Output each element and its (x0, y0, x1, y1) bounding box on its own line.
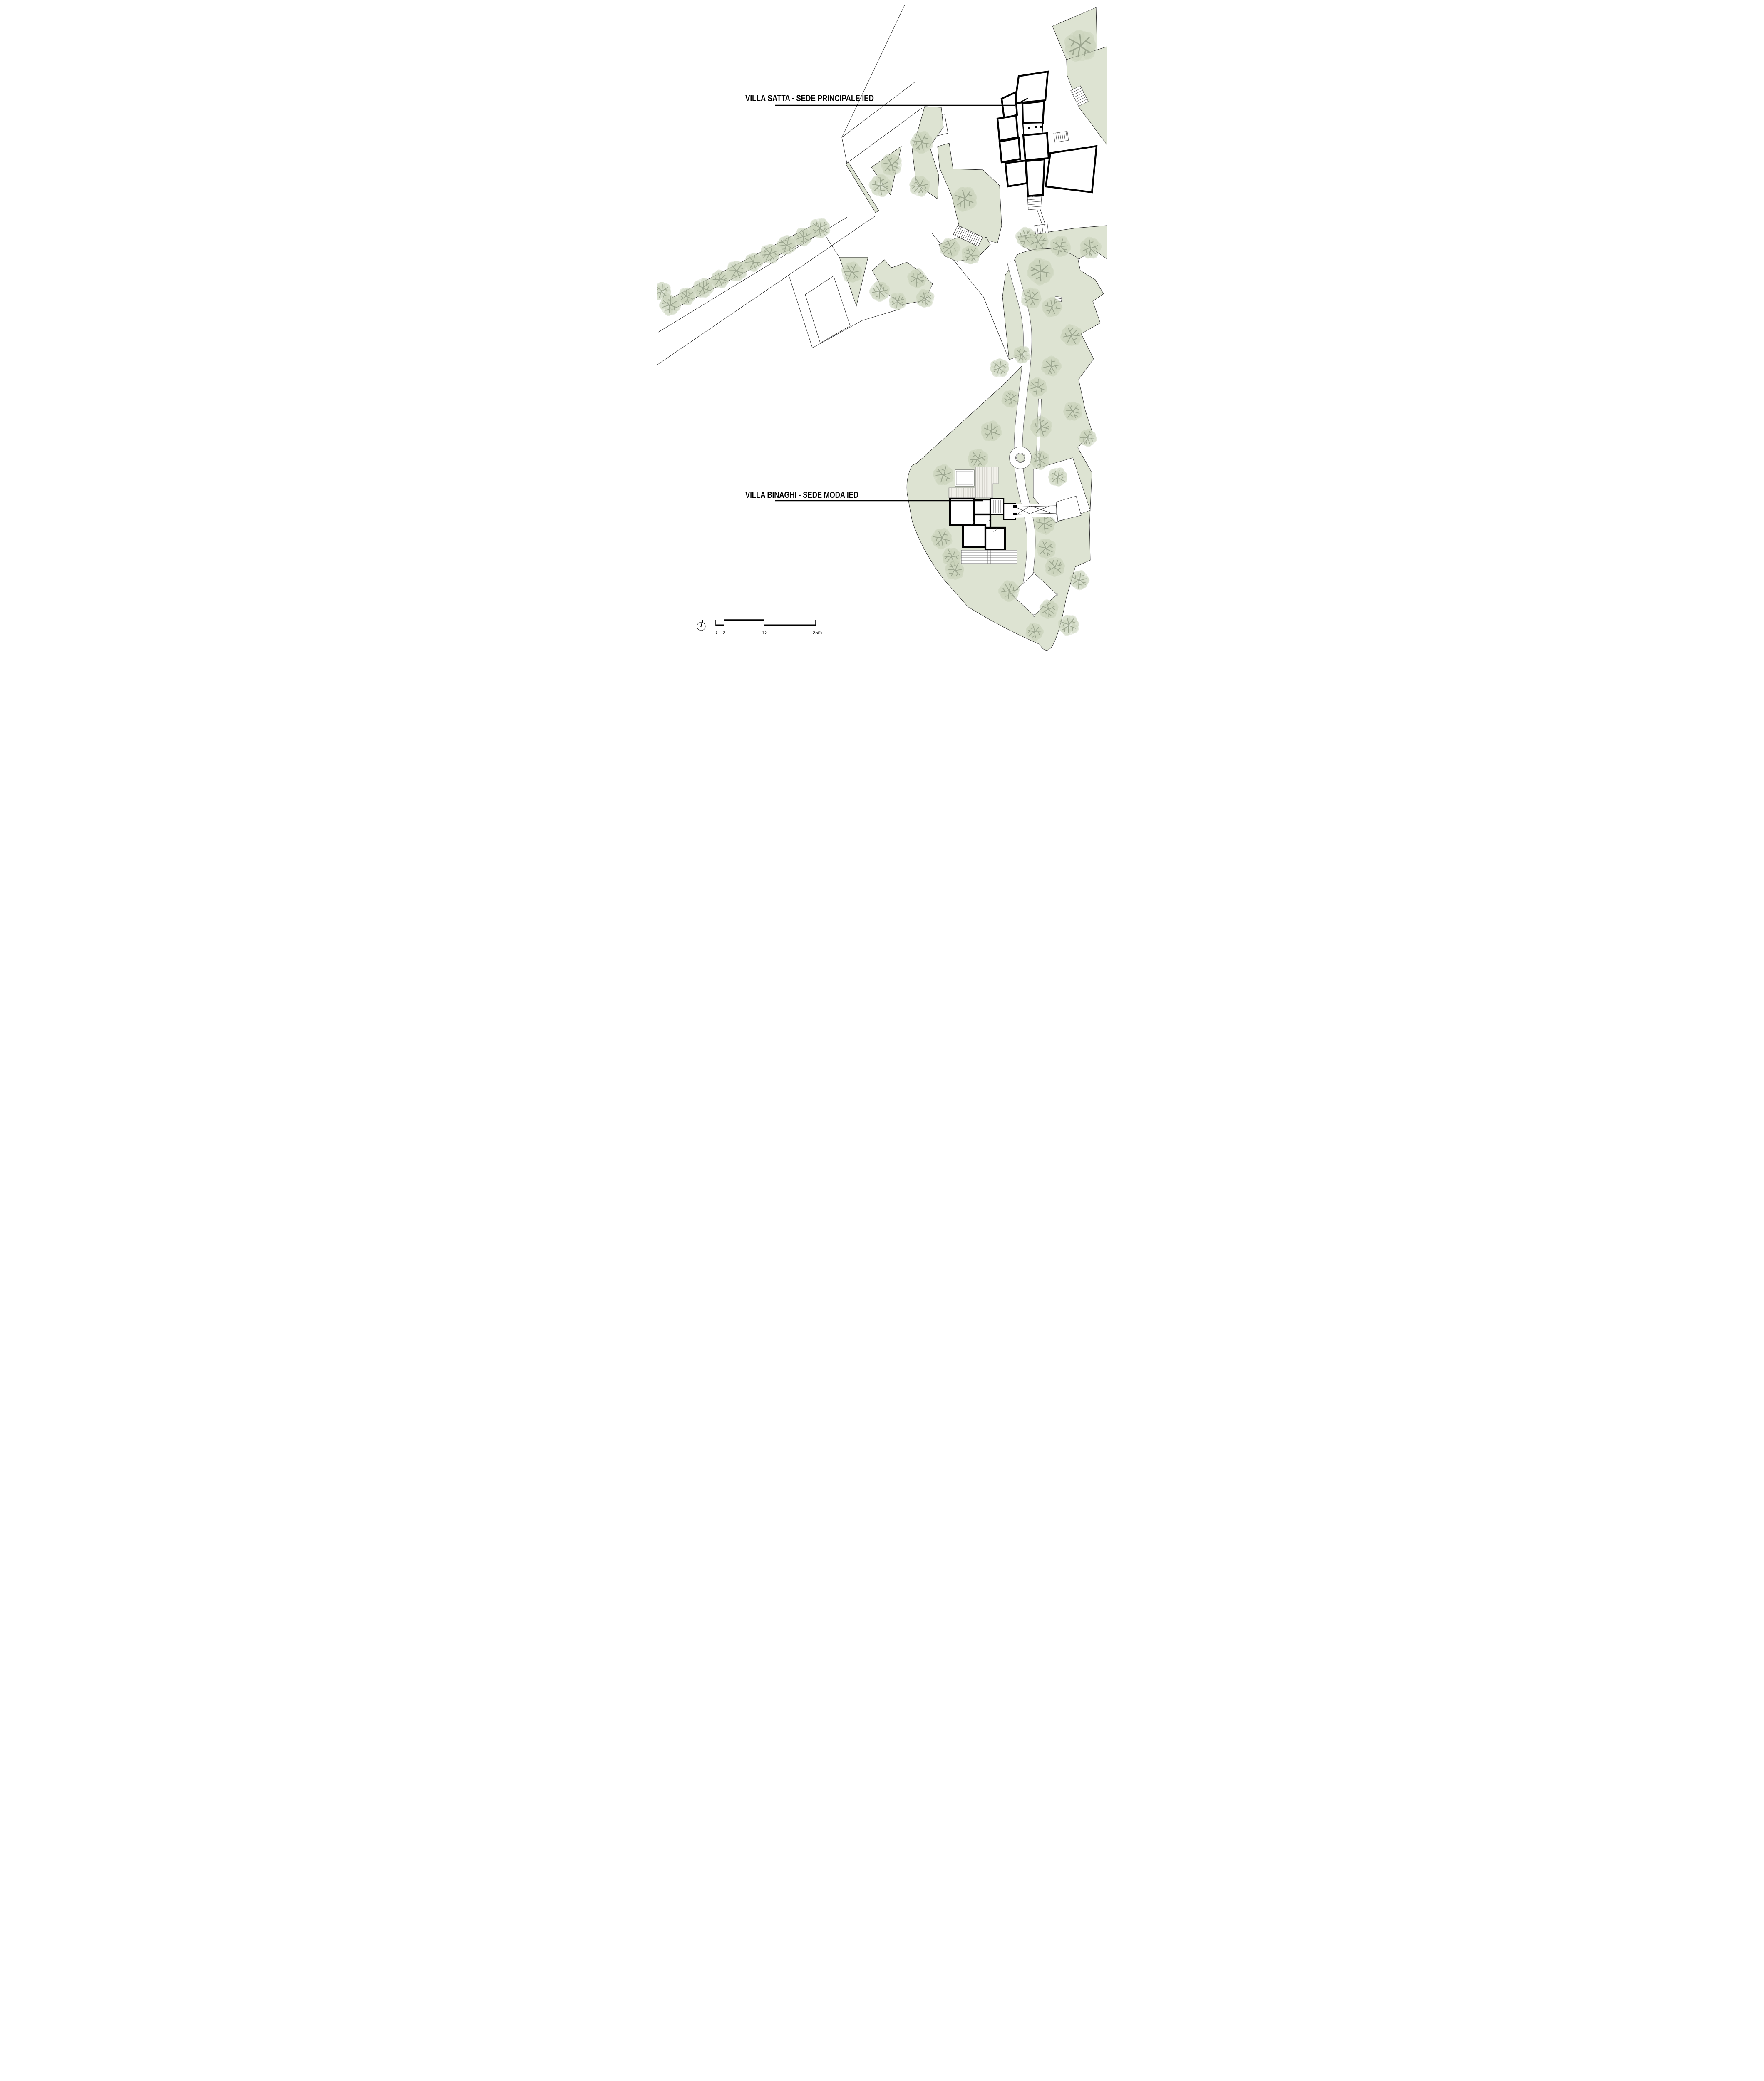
southeast-entry-steps (1035, 224, 1048, 234)
south-porch-steps (1027, 196, 1042, 210)
path-loop-island (1016, 454, 1024, 462)
villa-binaghi-label: VILLA BINAGHI - SEDE MODA IED (745, 490, 858, 500)
scale-tick-12: 12 (762, 631, 767, 636)
scale-tick-25m: 25m (812, 631, 821, 636)
scale-tick-0: 0 (714, 631, 717, 636)
east-terrace-steps (1054, 131, 1069, 142)
deck-strip (949, 488, 975, 498)
villa-satta-label: VILLA SATTA - SEDE PRINCIPALE IED (745, 94, 874, 103)
pool (955, 470, 974, 486)
scale-tick-2: 2 (722, 631, 725, 636)
tree-icon (888, 293, 906, 310)
bridge (1013, 503, 1057, 518)
site-plan-drawing: VILLA SATTA - SEDE PRINCIPALE IED VILLA … (657, 0, 1107, 654)
garden-steps (961, 550, 1017, 564)
site-plan-sheet: VILLA SATTA - SEDE PRINCIPALE IED VILLA … (657, 0, 1107, 654)
